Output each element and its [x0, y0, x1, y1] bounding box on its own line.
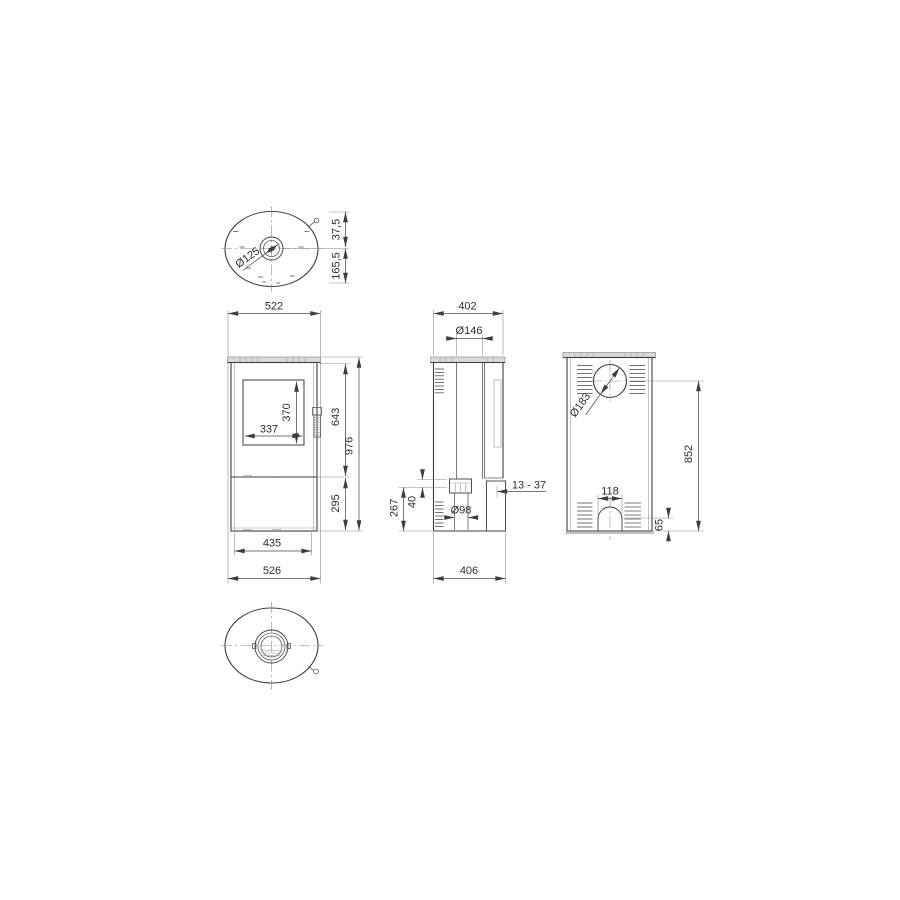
- dim-side-flange-height: 40: [407, 496, 419, 508]
- dim-front-lower-height: 295: [330, 494, 342, 512]
- bottom-control-knob: [309, 667, 319, 674]
- dim-front-top-width: 522: [265, 301, 283, 313]
- dim-front-glass-height: 370: [281, 403, 293, 421]
- dim-front-total-height: 976: [344, 437, 356, 455]
- dim-front-firebox-height: 643: [330, 408, 342, 426]
- dim-front-glass-width: 337: [260, 424, 278, 436]
- back-louvres-top-right: [630, 366, 646, 394]
- dim-side-bottom-depth: 406: [460, 565, 478, 577]
- back-top-plate: [563, 353, 656, 358]
- top-control-knob: [309, 218, 319, 227]
- side-louvres-top: [435, 369, 444, 393]
- side-louvres-bottom: [435, 502, 444, 527]
- dim-back-flue-height: 852: [683, 445, 695, 463]
- front-view: 522 370 337: [228, 301, 364, 584]
- dim-back-arch-offset: 65: [654, 519, 666, 531]
- top-view: 37,5 165,5 Ø125: [221, 206, 350, 292]
- dim-front-bottom-width: 526: [263, 565, 281, 577]
- bottom-view: [221, 602, 323, 690]
- dim-back-flue-diameter: Ø183: [568, 391, 593, 420]
- back-louvres-bottom-left: [577, 503, 593, 527]
- dim-top-offset-upper: 37,5: [331, 219, 343, 240]
- side-view: 402 Ø146 Ø98: [389, 301, 547, 584]
- front-top-plate: [228, 357, 321, 363]
- technical-drawing: 37,5 165,5 Ø125 522 370 337: [0, 0, 900, 900]
- dim-side-top-depth: 402: [458, 301, 476, 313]
- drawing-canvas: 37,5 165,5 Ø125 522 370 337: [0, 0, 900, 900]
- dim-side-rear-gap: 13 - 37: [512, 480, 546, 492]
- back-louvres-bottom-right: [625, 503, 642, 527]
- dim-back-arch-width: 118: [601, 486, 619, 498]
- dim-side-flue-diameter: Ø146: [456, 325, 483, 337]
- dim-front-base-width: 435: [263, 538, 281, 550]
- side-door-glass-edge: [494, 380, 501, 447]
- dim-side-inlet-diameter: Ø98: [451, 505, 472, 517]
- back-louvres-top-left: [577, 366, 593, 394]
- side-rear-panel: [487, 481, 506, 531]
- dim-side-inlet-height: 267: [389, 499, 401, 517]
- side-top-plate: [431, 357, 506, 363]
- back-view: Ø183 118 65 852: [563, 353, 704, 541]
- back-stove-body: [567, 358, 652, 532]
- dim-top-offset-lower: 165,5: [331, 252, 343, 280]
